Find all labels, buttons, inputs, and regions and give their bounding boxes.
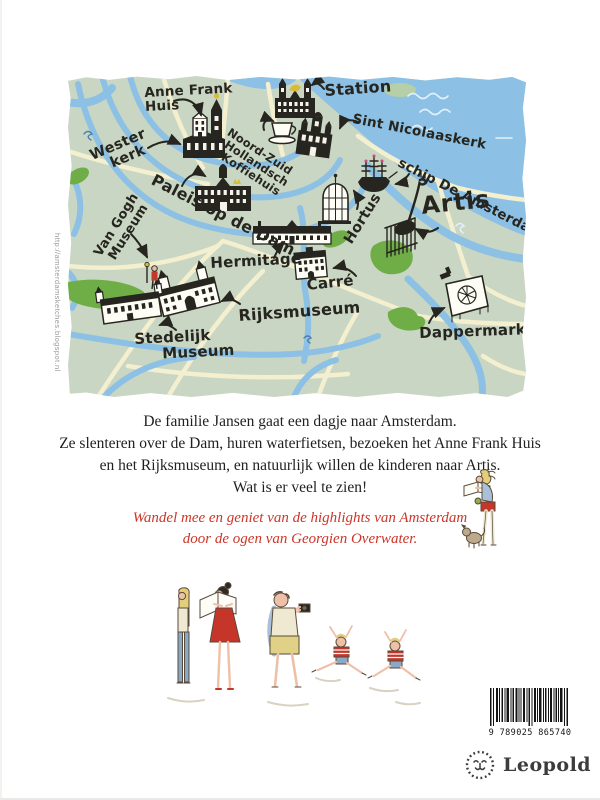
barcode: 9 789025 865740: [488, 686, 572, 738]
publisher-name: Leopold: [503, 754, 591, 776]
anne-frank-huis-building-icon: [193, 112, 207, 137]
station-building-icon: [275, 78, 315, 118]
dappermarkt-stall-icon: [440, 266, 488, 322]
blurb-line: De familie Jansen gaat een dagje naar Am…: [0, 411, 600, 433]
amsterdam-map-illustration: Anne Frank Huis Wester kerk Station Sint…: [68, 76, 526, 397]
girl-figure: [177, 588, 190, 683]
barcode-number: 9 789025 865740: [488, 728, 572, 738]
child-figure: [368, 630, 420, 680]
coffee-cup-icon: [269, 123, 296, 144]
child-figure: [312, 626, 366, 675]
ground-marks: [168, 678, 420, 706]
mother-figure: [200, 583, 240, 690]
barcode-bars: [488, 686, 572, 730]
blurb-line: Ze slenteren over de Dam, huren waterfie…: [0, 433, 600, 455]
woman-with-dog-illustration: [452, 466, 542, 566]
map-label-stedelijk-museum: Stedelijk Museum: [134, 327, 235, 364]
leopold-lion-icon: [464, 749, 496, 781]
credit-url: http://amsterdamsketches.blogspot.nl: [53, 233, 62, 408]
book-back-cover: Anne Frank Huis Wester kerk Station Sint…: [0, 0, 600, 800]
family-illustration: [148, 580, 433, 730]
publisher-logo: Leopold: [464, 749, 591, 781]
father-figure: [270, 592, 310, 687]
map-label-anne-frank-huis: Anne Frank Huis: [144, 81, 234, 114]
